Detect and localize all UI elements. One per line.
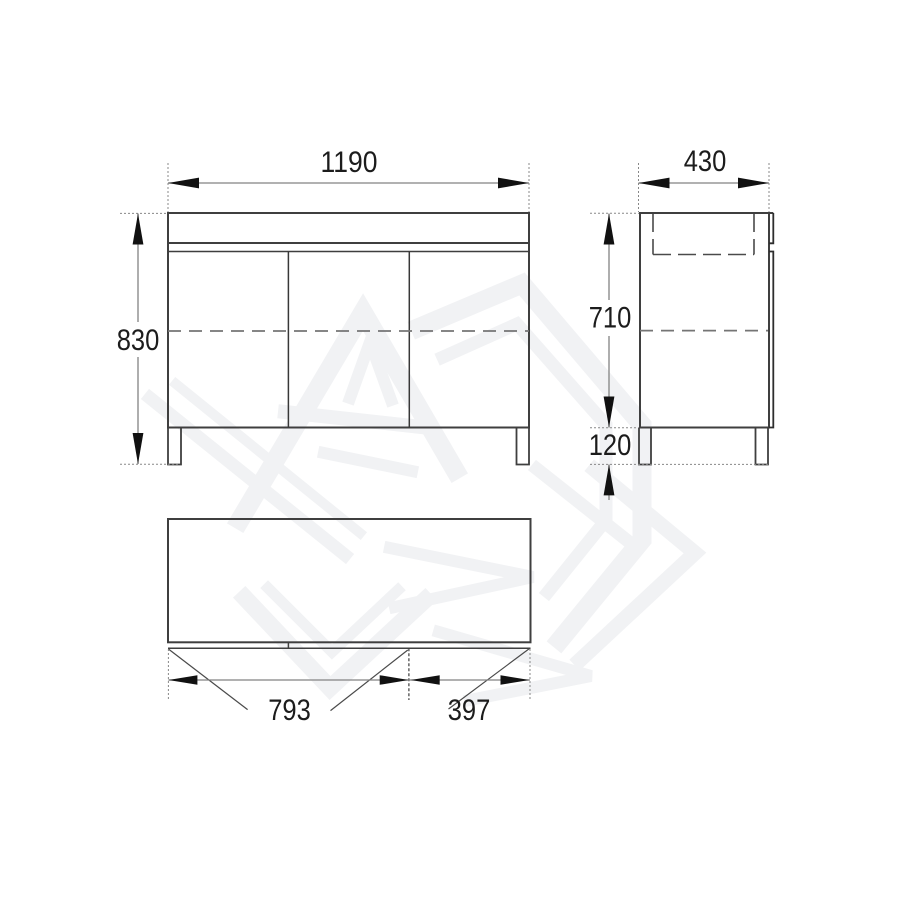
svg-text:397: 397 bbox=[448, 694, 491, 727]
svg-text:830: 830 bbox=[117, 324, 160, 357]
svg-text:1190: 1190 bbox=[321, 146, 378, 179]
svg-text:793: 793 bbox=[268, 694, 311, 727]
svg-text:430: 430 bbox=[684, 145, 727, 178]
svg-text:710: 710 bbox=[589, 302, 632, 335]
svg-text:120: 120 bbox=[589, 429, 632, 462]
